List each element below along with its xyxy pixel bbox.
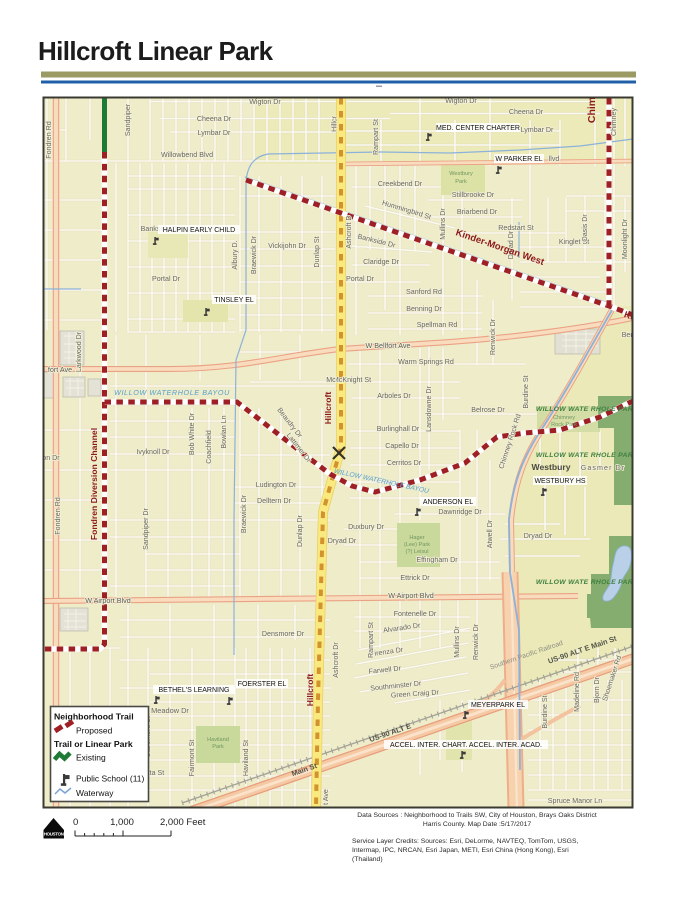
svg-text:Mullins Dr: Mullins Dr: [439, 208, 447, 240]
svg-text:W PARKER EL: W PARKER EL: [495, 156, 542, 163]
svg-text:Claridge Dr: Claridge Dr: [363, 258, 400, 266]
svg-text:Duxbury Dr: Duxbury Dr: [348, 523, 385, 531]
svg-text:WILLOW WATE RHOLE PARK: WILLOW WATE RHOLE PARK: [536, 579, 639, 586]
svg-text:Fairmont St: Fairmont St: [188, 740, 196, 777]
svg-text:Fontenelle Dr: Fontenelle Dr: [394, 610, 437, 618]
svg-text:Park: Park: [455, 179, 467, 185]
svg-text:Mullins Dr: Mullins Dr: [453, 626, 461, 658]
svg-text:Rampart St: Rampart St: [367, 622, 375, 658]
svg-text:MEYERPARK EL: MEYERPARK EL: [471, 702, 525, 709]
svg-text:Benn: Benn: [622, 331, 639, 339]
svg-text:Fondren Diversion Channel: Fondren Diversion Channel: [89, 428, 99, 540]
svg-text:Ettrick Dr: Ettrick Dr: [400, 574, 430, 582]
svg-text:Redstart St: Redstart St: [498, 224, 534, 232]
svg-text:Albury D.: Albury D.: [231, 240, 239, 269]
svg-text:llvd: llvd: [549, 155, 560, 163]
svg-text:Ashcroft Dr: Ashcroft Dr: [332, 642, 340, 678]
svg-text:HOUSTON: HOUSTON: [44, 832, 64, 837]
svg-text:Sandpiper Dr: Sandpiper Dr: [142, 507, 150, 549]
svg-text:Intermap, IPC, NRCAN, Esri Jap: Intermap, IPC, NRCAN, Esri Japan, METI, …: [352, 847, 569, 854]
svg-text:ANDERSON EL: ANDERSON EL: [423, 499, 473, 506]
svg-text:Sanford Rd: Sanford Rd: [406, 288, 442, 296]
svg-text:W Airport Blvd: W Airport Blvd: [388, 591, 434, 600]
svg-text:WILLOW WATE RHOLE PARK: WILLOW WATE RHOLE PARK: [536, 406, 639, 413]
svg-text:Spruce Manor Ln: Spruce Manor Ln: [548, 797, 602, 805]
svg-text:Neighborhood Trail: Neighborhood Trail: [54, 712, 134, 722]
svg-text:Chimney: Chimney: [553, 415, 575, 421]
svg-text:Cheena Dr: Cheena Dr: [509, 108, 544, 116]
svg-text:Oasis Dr: Oasis Dr: [581, 214, 589, 242]
svg-text:Densmore Dr: Densmore Dr: [262, 630, 305, 638]
svg-text:Haviland: Haviland: [207, 737, 229, 743]
svg-text:W Bellfort Ave: W Bellfort Ave: [365, 341, 410, 350]
svg-text:t Ave: t Ave: [322, 789, 330, 805]
svg-text:Creekbend Dr: Creekbend Dr: [378, 180, 423, 188]
svg-text:Proposed: Proposed: [76, 726, 113, 736]
svg-text:Vickijohn Dr: Vickijohn Dr: [268, 242, 306, 250]
svg-text:Wigton Dr: Wigton Dr: [249, 98, 281, 106]
svg-text:Braewick Dr: Braewick Dr: [240, 494, 248, 533]
svg-text:Data Sources : Neighborhood to: Data Sources : Neighborhood to Trails SW…: [357, 812, 597, 819]
svg-text:WILLOW WATERHOLE BAYOU: WILLOW WATERHOLE BAYOU: [114, 388, 230, 397]
svg-text:Hillcr: Hillcr: [331, 115, 339, 131]
svg-text:Public School (11): Public School (11): [76, 774, 145, 784]
svg-text:1,000: 1,000: [110, 817, 134, 828]
svg-text:Ivyknoll Dr: Ivyknoll Dr: [136, 448, 170, 456]
svg-text:TINSLEY EL: TINSLEY EL: [214, 297, 254, 304]
svg-text:Service Layer Credits: Sources: Service Layer Credits: Sources: Esri, De…: [352, 838, 578, 845]
svg-text:Renwick Dr: Renwick Dr: [489, 318, 497, 355]
svg-text:Lansdowne Dr: Lansdowne Dr: [425, 385, 433, 431]
svg-text:Arboles Dr: Arboles Dr: [377, 392, 411, 400]
svg-text:WILLOW WATE RHOLE PARK: WILLOW WATE RHOLE PARK: [536, 452, 639, 459]
svg-text:Hillcroft: Hillcroft: [305, 674, 315, 707]
svg-text:Burlinghall Dr: Burlinghall Dr: [377, 425, 420, 433]
svg-text:Mc: Mc: [326, 376, 336, 384]
svg-text:W Airport Blvd: W Airport Blvd: [85, 596, 131, 605]
svg-text:Benning Dr: Benning Dr: [406, 305, 442, 313]
svg-text:Westbury: Westbury: [532, 462, 571, 472]
svg-text:Capello Dr: Capello Dr: [385, 442, 419, 450]
svg-text:Lymbar Dr: Lymbar Dr: [198, 129, 231, 137]
svg-text:Atwell Dr: Atwell Dr: [486, 519, 494, 548]
svg-text:Lymbar Dr: Lymbar Dr: [521, 126, 554, 134]
svg-text:Bjorn Dr: Bjorn Dr: [593, 676, 601, 703]
svg-text:Dryad Dr: Dryad Dr: [328, 537, 357, 545]
svg-text:2,000 Feet: 2,000 Feet: [160, 817, 206, 828]
svg-text:Existing: Existing: [76, 753, 106, 763]
svg-text:Hillcroft Linear Park: Hillcroft Linear Park: [38, 36, 274, 66]
svg-text:Bob White Dr: Bob White Dr: [188, 412, 196, 455]
svg-text:Rock Park: Rock Park: [551, 422, 577, 428]
svg-text:Willowbend Blvd: Willowbend Blvd: [161, 151, 213, 159]
svg-text:Chimney: Chimney: [610, 108, 618, 136]
svg-text:Larkwood Dr: Larkwood Dr: [75, 331, 83, 372]
svg-text:Warm Springs Rd: Warm Springs Rd: [398, 358, 454, 366]
svg-text:0: 0: [73, 817, 78, 828]
svg-text:fort Ave: fort Ave: [48, 365, 72, 374]
svg-text:Dunlap Dr: Dunlap Dr: [296, 514, 304, 547]
svg-text:Hillcroft: Hillcroft: [323, 392, 333, 425]
svg-text:Fondren Rd: Fondren Rd: [54, 497, 62, 535]
svg-text:MED. CENTER CHARTER: MED. CENTER CHARTER: [436, 125, 520, 132]
svg-text:Madeline Rd: Madeline Rd: [573, 672, 581, 712]
svg-text:Chim: Chim: [586, 97, 598, 123]
svg-text:(Lee) Park: (Lee) Park: [404, 542, 430, 548]
svg-text:Burdine St: Burdine St: [522, 375, 530, 408]
svg-text:Portal Dr: Portal Dr: [152, 275, 181, 283]
svg-text:Dunlap St: Dunlap St: [313, 236, 321, 267]
svg-text:BETHEL'S LEARNING: BETHEL'S LEARNING: [159, 687, 230, 694]
svg-text:Braewick Dr: Braewick Dr: [250, 235, 258, 274]
svg-text:Harris County. Map Date :5/17/: Harris County. Map Date :5/17/2017: [423, 821, 532, 828]
svg-text:Park: Park: [212, 744, 224, 750]
svg-text:Dawnridge Dr: Dawnridge Dr: [438, 508, 482, 516]
svg-text:ACCEL. INTER. CHART. ACCEL. I: ACCEL. INTER. CHART. ACCEL. INTER. ACAD.: [390, 742, 542, 749]
svg-text:FOERSTER EL: FOERSTER EL: [238, 681, 287, 688]
svg-text:Cheena Dr: Cheena Dr: [197, 115, 232, 123]
svg-text:(Thailand): (Thailand): [352, 856, 383, 863]
svg-text:Briarbend Dr: Briarbend Dr: [457, 208, 498, 216]
svg-text:Bowlan Ln: Bowlan Ln: [220, 415, 228, 448]
svg-text:Renwick Dr: Renwick Dr: [472, 623, 480, 660]
svg-text:Waterway: Waterway: [76, 788, 114, 798]
svg-text:Portal Dr: Portal Dr: [346, 275, 375, 283]
svg-text:HALPIN EARLY CHILD: HALPIN EARLY CHILD: [163, 227, 236, 234]
svg-text:McKnight St: McKnight St: [333, 376, 371, 384]
svg-text:Effingham Dr: Effingham Dr: [416, 556, 458, 564]
svg-text:Haviland St: Haviland St: [242, 740, 250, 776]
svg-text:Moonlight Dr: Moonlight Dr: [621, 218, 629, 259]
svg-text:Dryad Dr: Dryad Dr: [524, 532, 553, 540]
svg-text:Stillbrooke Dr: Stillbrooke Dr: [452, 191, 495, 199]
svg-text:Meadow Dr: Meadow Dr: [151, 706, 189, 715]
svg-text:Coachfield: Coachfield: [205, 430, 213, 464]
svg-text:Delltern Dr: Delltern Dr: [257, 497, 292, 505]
svg-text:WESTBURY HS: WESTBURY HS: [534, 478, 585, 485]
svg-text:Sandpiper: Sandpiper: [124, 103, 132, 136]
svg-text:(?) Leisul: (?) Leisul: [405, 549, 428, 555]
svg-text:Fondren Rd: Fondren Rd: [45, 121, 53, 159]
svg-text:Gasmer Dr: Gasmer Dr: [581, 464, 626, 472]
svg-text:Cerritos Dr: Cerritos Dr: [387, 459, 422, 467]
svg-text:Hager: Hager: [409, 535, 424, 541]
svg-text:Belrose Dr: Belrose Dr: [471, 406, 505, 414]
svg-text:Spellman Rd: Spellman Rd: [417, 321, 458, 329]
svg-text:Ashcroft D: Ashcroft D: [345, 215, 353, 248]
svg-text:Westbury: Westbury: [449, 171, 473, 177]
svg-text:Trail or Linear Park: Trail or Linear Park: [54, 739, 133, 749]
svg-text:Burdine St: Burdine St: [541, 695, 549, 728]
svg-text:Ludington Dr: Ludington Dr: [256, 481, 297, 489]
svg-text:Rampart St: Rampart St: [372, 119, 380, 155]
